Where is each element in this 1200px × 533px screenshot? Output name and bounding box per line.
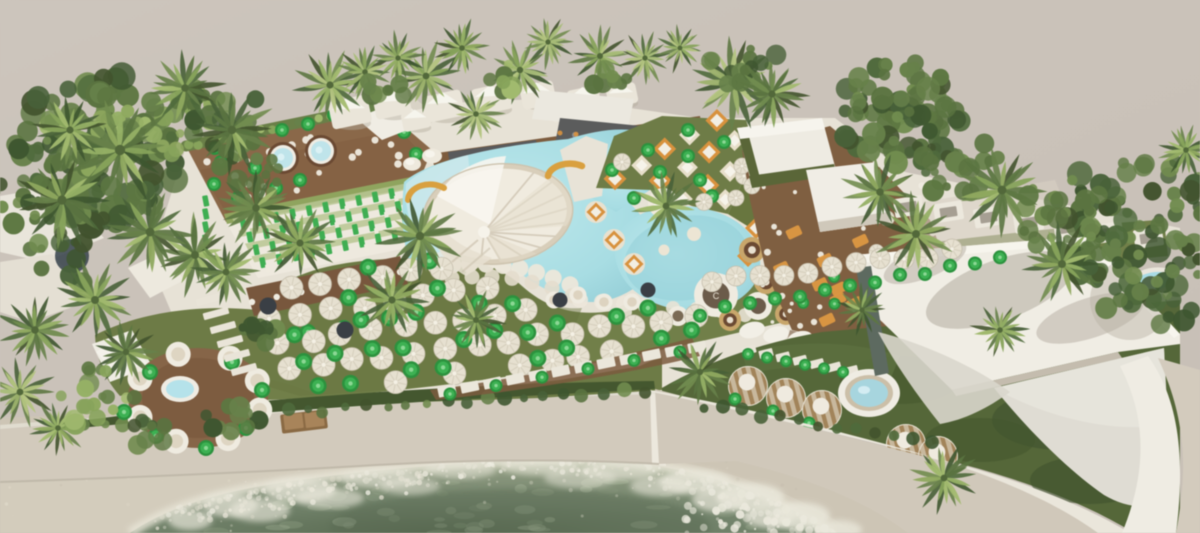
svg-text:C: C <box>713 291 720 301</box>
